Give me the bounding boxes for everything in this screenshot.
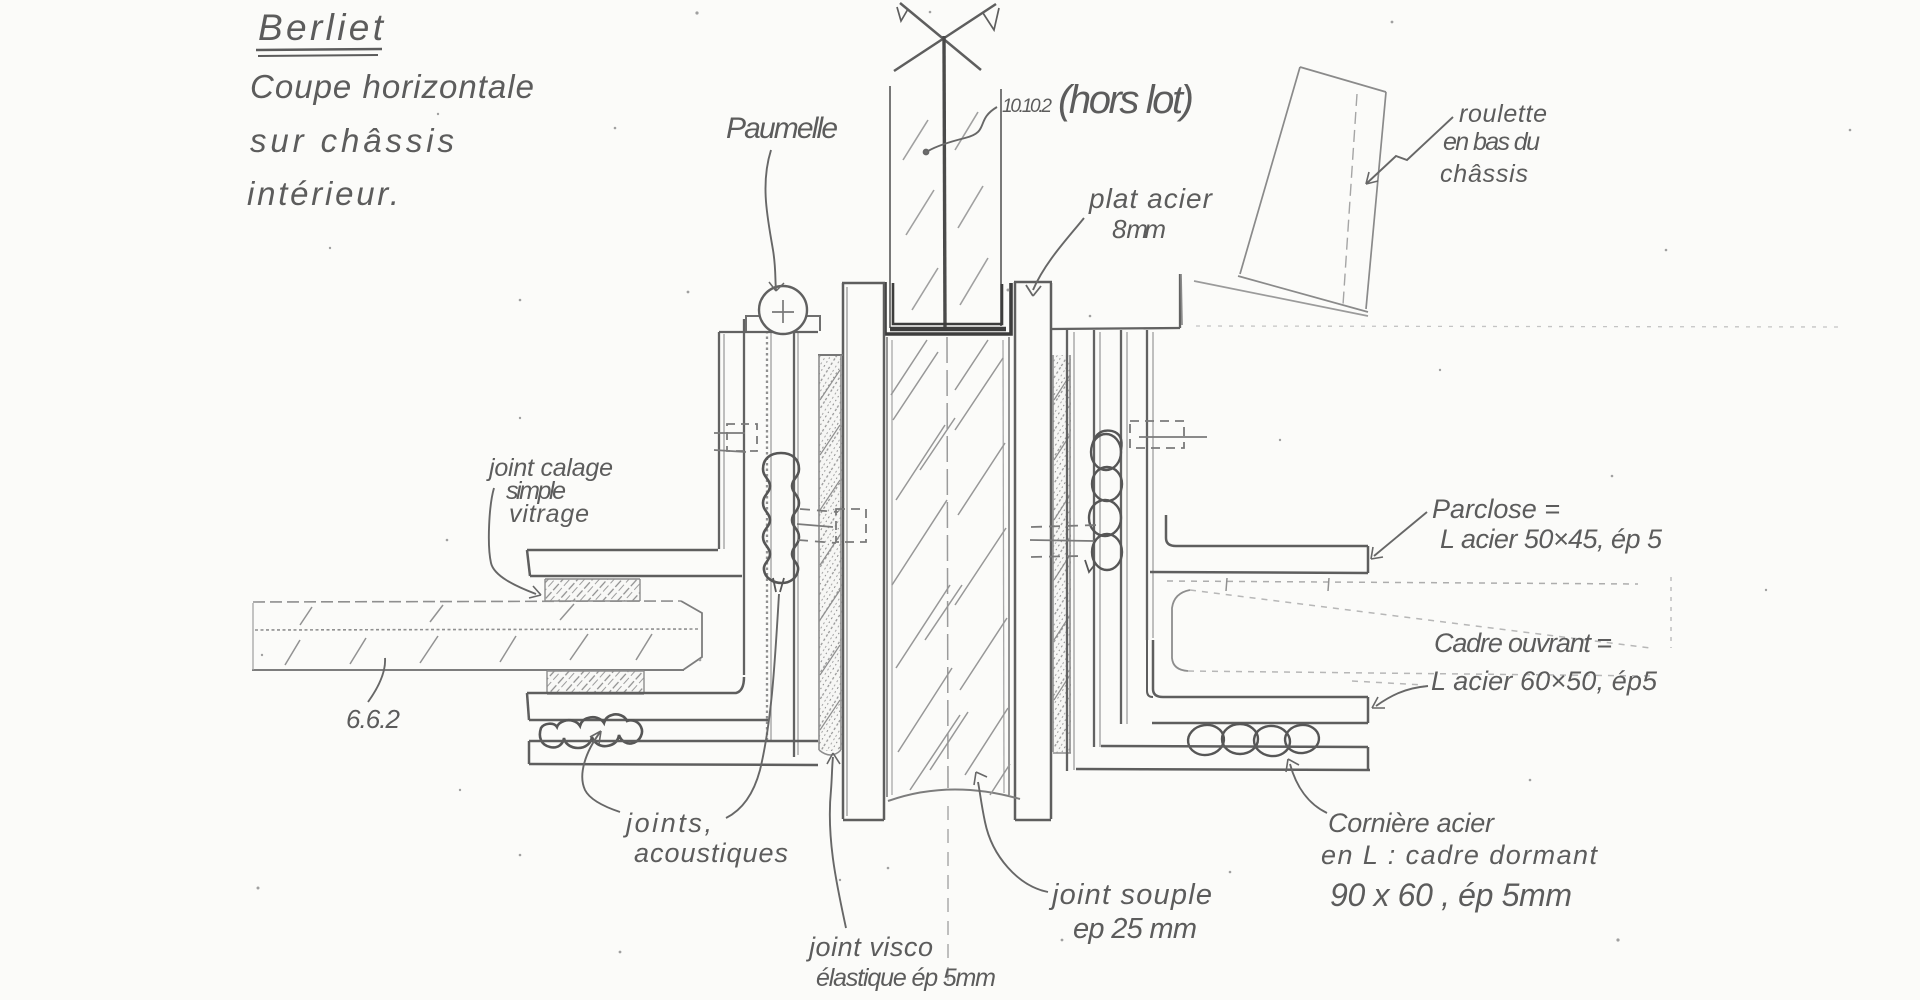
svg-text:en bas du: en bas du [1443,128,1540,156]
svg-text:90 x 60 , ép 5mm: 90 x 60 , ép 5mm [1330,877,1572,913]
svg-text:(hors lot): (hors lot) [1058,78,1194,122]
svg-text:joints,: joints, [622,808,712,838]
svg-text:L acier 60×50, ép5: L acier 60×50, ép5 [1431,666,1658,696]
svg-text:Cadre ouvrant =: Cadre ouvrant = [1434,628,1612,658]
svg-text:joint visco: joint visco [805,932,933,962]
svg-text:Coupe horizontale: Coupe horizontale [250,68,534,105]
svg-text:L acier 50×45, ép 5: L acier 50×45, ép 5 [1440,524,1663,554]
svg-text:acoustiques: acoustiques [634,838,788,868]
svg-text:Parclose =: Parclose = [1432,494,1560,524]
svg-text:plat acier: plat acier [1088,183,1214,214]
svg-text:vitrage: vitrage [509,500,589,528]
svg-text:roulette: roulette [1459,100,1547,128]
svg-text:10.10.2: 10.10.2 [1002,96,1052,117]
svg-text:joint souple: joint souple [1048,879,1212,911]
svg-text:Paumelle: Paumelle [726,112,838,145]
svg-text:Berliet: Berliet [258,7,385,48]
svg-text:en L : cadre dormant: en L : cadre dormant [1321,840,1598,870]
svg-text:élastique ép 5mm: élastique ép 5mm [816,964,996,992]
svg-text:6.6.2: 6.6.2 [346,704,401,734]
svg-text:8 mm: 8 mm [1112,214,1166,244]
svg-text:ep 25 mm: ep 25 mm [1073,913,1197,945]
svg-text:châssis: châssis [1440,160,1528,188]
svg-text:Cornière acier: Cornière acier [1328,808,1495,838]
